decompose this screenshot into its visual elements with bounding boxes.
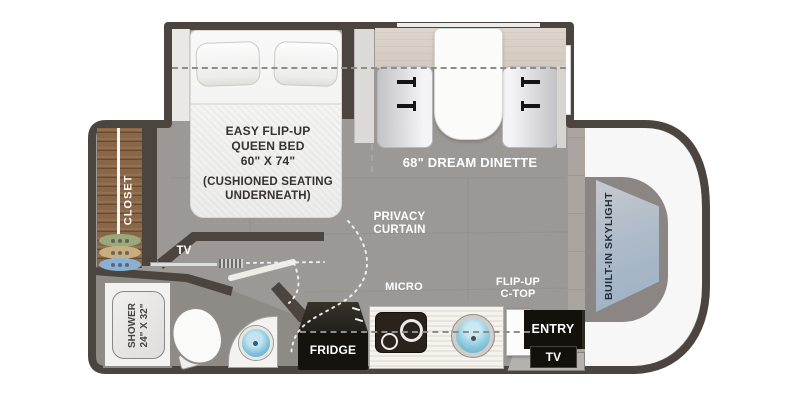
side-window [565, 45, 571, 115]
bed-label-line2: QUEEN BED [200, 139, 336, 154]
pocket-door-track-icon [219, 259, 243, 268]
shower-label-line1: SHOWER [127, 303, 138, 348]
counter-dashed-line [300, 331, 530, 333]
skylight-label-wrap: BUILT-IN SKYLIGHT [596, 180, 622, 312]
fridge-label: FRIDGE [310, 344, 357, 357]
bedroom-tv [150, 262, 218, 267]
closet-label-wrap: CLOSET [118, 158, 140, 242]
pillow-left [195, 41, 260, 87]
flipup-label: FLIP-UP C-TOP [494, 277, 542, 300]
entry-door: ENTRY [524, 310, 585, 349]
bedside-cabinet [172, 29, 190, 121]
flipup-line1: FLIP-UP [494, 277, 542, 289]
bed-label-line1: EASY FLIP-UP [200, 124, 336, 139]
flipup-line2: C-TOP [494, 289, 542, 301]
bed-wall-post [342, 24, 354, 119]
seatbelt-icon [397, 80, 416, 84]
bed-foot-wall [192, 232, 324, 241]
privacy-curtain-label: PRIVACY CURTAIN [362, 211, 437, 236]
shower: SHOWER 24" X 32" [103, 281, 172, 368]
kitchen-sink-drain [471, 336, 476, 341]
pillow-right [273, 41, 338, 87]
linen-shelf-item [99, 258, 141, 271]
dinette-label: 68" DREAM DINETTE [395, 156, 545, 170]
seatbelt-icon [521, 104, 540, 108]
burner-icon [381, 333, 398, 350]
fridge: FRIDGE [298, 331, 368, 370]
dinette-table [434, 28, 503, 140]
bed-note-label: (CUSHIONED SEATING UNDERNEATH) [192, 176, 344, 203]
bed-note-line2: UNDERNEATH) [192, 190, 344, 204]
entry-tv-label: TV [546, 351, 562, 364]
skylight-label: BUILT-IN SKYLIGHT [603, 192, 615, 300]
micro-label: MICRO [380, 282, 428, 294]
entry-tv: TV [530, 346, 577, 368]
wall-highlight [397, 23, 540, 27]
seatbelt-icon [521, 80, 540, 84]
shower-pan: SHOWER 24" X 32" [112, 291, 165, 359]
flip-up-dashed-line [172, 67, 566, 69]
bed-side-counter [354, 29, 374, 143]
privacy-line1: PRIVACY [362, 211, 437, 224]
rv-floor-plan: SHOWER 24" X 32" FRIDGE ENTRY TV BUILT-I… [0, 0, 800, 400]
bedroom-tv-label: TV [168, 245, 200, 257]
bed-label-line3: 60" X 74" [200, 154, 336, 169]
closet-label: CLOSET [123, 175, 135, 226]
bed-note-line1: (CUSHIONED SEATING [192, 176, 344, 190]
privacy-line2: CURTAIN [362, 224, 437, 237]
bathroom-sink-drain [253, 341, 258, 346]
fridge-top [298, 302, 368, 332]
shower-label-line2: 24" X 32" [139, 303, 150, 347]
hall-wall [142, 126, 157, 266]
bed-label: EASY FLIP-UP QUEEN BED 60" X 74" [200, 124, 336, 169]
slide-dashed-line [371, 144, 373, 172]
seatbelt-icon [397, 104, 416, 108]
entry-label: ENTRY [532, 323, 575, 337]
